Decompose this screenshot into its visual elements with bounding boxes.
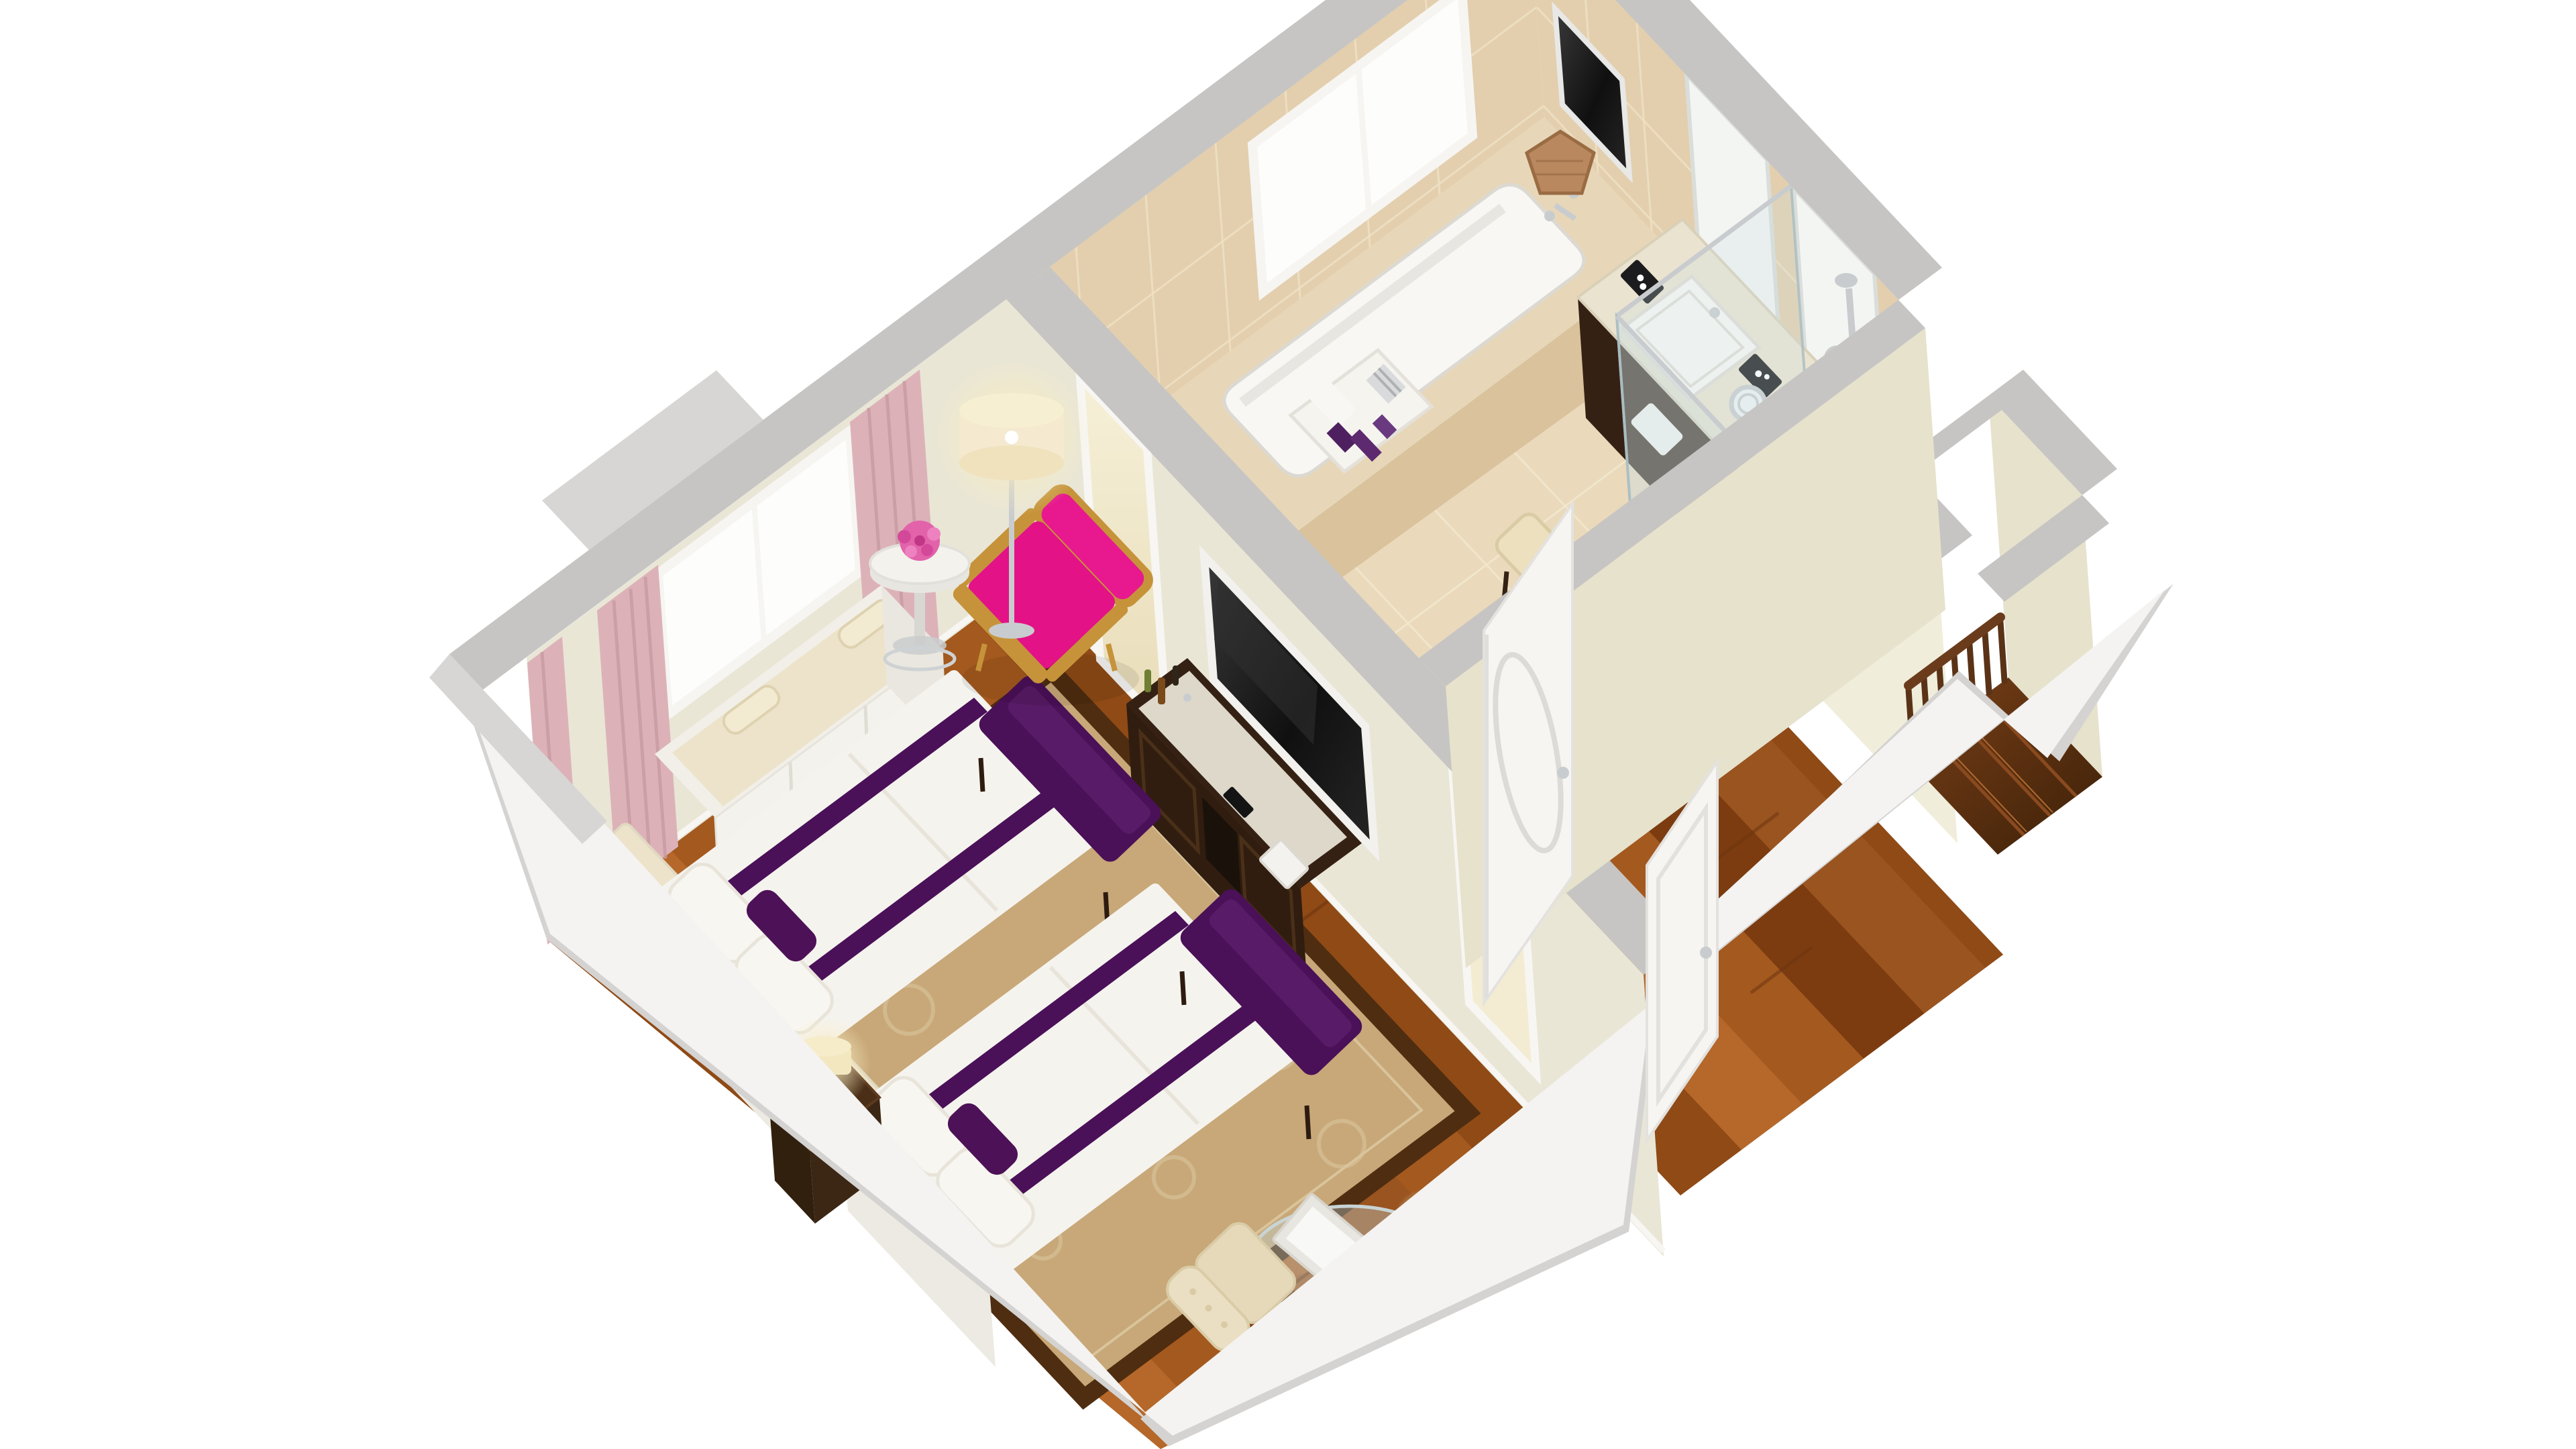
- side-door-handle: [1700, 947, 1712, 959]
- floorplan-stage: 3D dollhouse floor plan render - hotel g…: [0, 0, 2576, 1449]
- floorplan-render: [0, 0, 2576, 1449]
- entry-door-handle: [1557, 767, 1569, 779]
